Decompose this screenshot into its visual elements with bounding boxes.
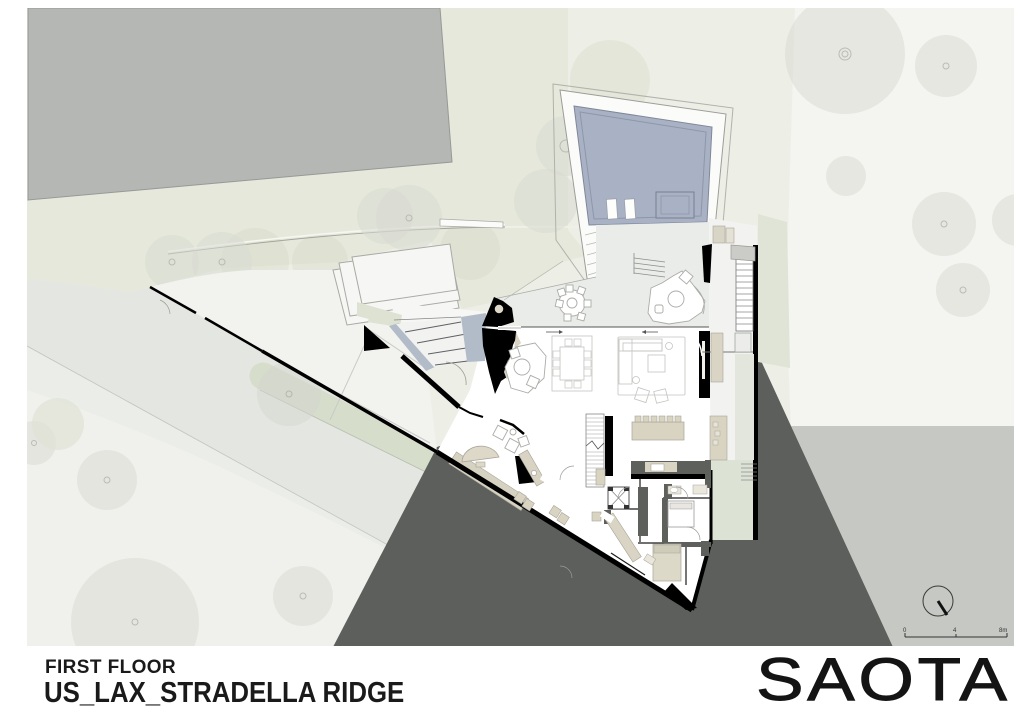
svg-text:US_LAX_STRADELLA RIDGE: US_LAX_STRADELLA RIDGE	[44, 676, 404, 709]
svg-text:8m: 8m	[999, 628, 1007, 634]
svg-text:SAOTA: SAOTA	[756, 645, 1011, 712]
